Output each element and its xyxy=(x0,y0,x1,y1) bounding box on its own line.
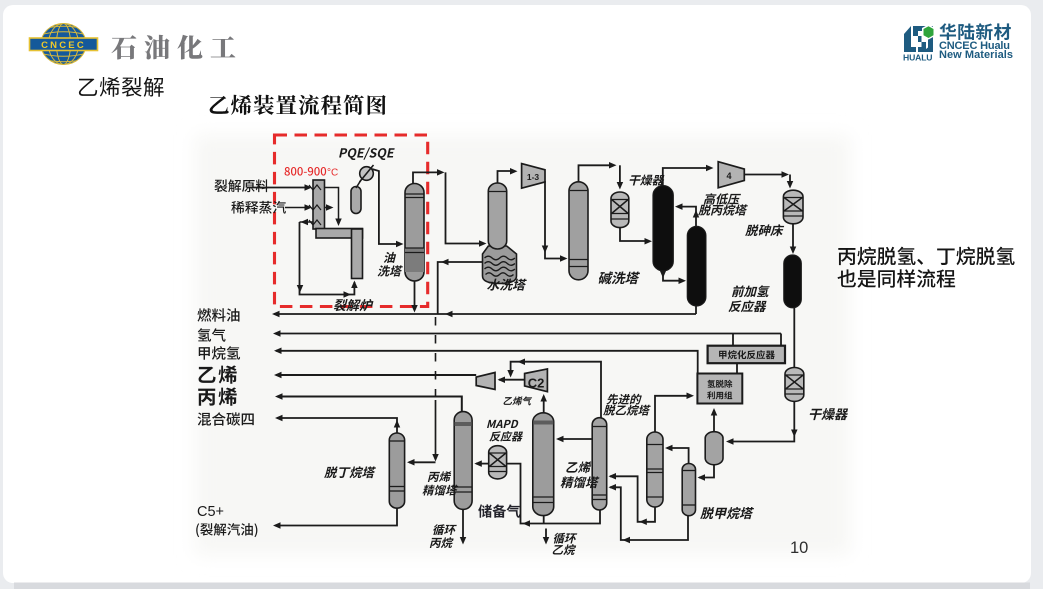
svg-text:C5+: C5+ xyxy=(197,504,224,520)
svg-text:10: 10 xyxy=(790,539,808,557)
svg-text:4: 4 xyxy=(726,171,731,181)
svg-text:°C: °C xyxy=(327,168,338,179)
svg-text:CNCEC: CNCEC xyxy=(41,40,86,51)
svg-text:1-3: 1-3 xyxy=(527,172,540,182)
svg-text:New Materials: New Materials xyxy=(939,49,1013,61)
svg-text:HUALU: HUALU xyxy=(903,53,933,63)
svg-text:C2: C2 xyxy=(528,376,545,391)
